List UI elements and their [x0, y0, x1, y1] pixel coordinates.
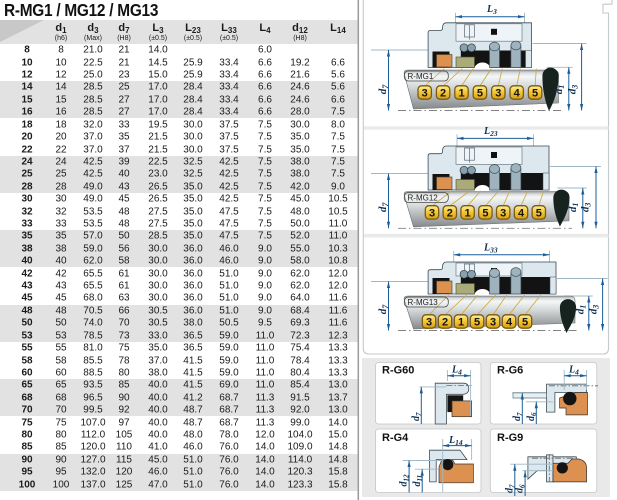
svg-text:R-G6: R-G6 — [497, 365, 523, 377]
svg-text:R-G60: R-G60 — [382, 365, 414, 377]
svg-text:3: 3 — [500, 207, 506, 219]
svg-text:5: 5 — [522, 317, 528, 329]
svg-text:1: 1 — [458, 88, 464, 100]
svg-text:5: 5 — [532, 88, 538, 100]
svg-text:d3: d3 — [580, 203, 593, 213]
svg-text:d7: d7 — [377, 84, 390, 95]
svg-text:4: 4 — [506, 317, 513, 329]
svg-text:d1: d1 — [575, 305, 588, 315]
svg-text:R-G9: R-G9 — [497, 432, 523, 444]
svg-text:2: 2 — [447, 207, 453, 219]
svg-text:3: 3 — [490, 317, 496, 329]
svg-text:3: 3 — [429, 207, 435, 219]
svg-text:3: 3 — [422, 88, 428, 100]
svg-text:L3: L3 — [486, 4, 497, 16]
svg-text:d7: d7 — [377, 202, 390, 213]
svg-text:R-MG12: R-MG12 — [408, 194, 439, 203]
svg-text:d7: d7 — [377, 304, 390, 315]
svg-text:2: 2 — [440, 88, 446, 100]
svg-text:L33: L33 — [483, 242, 498, 254]
svg-text:5: 5 — [477, 88, 483, 100]
svg-text:3: 3 — [495, 88, 501, 100]
svg-text:1: 1 — [458, 317, 464, 329]
svg-text:1: 1 — [465, 207, 471, 219]
svg-text:5: 5 — [536, 207, 542, 219]
svg-text:R-MG13: R-MG13 — [408, 298, 439, 307]
svg-text:R-G4: R-G4 — [382, 432, 409, 444]
svg-text:d3: d3 — [587, 305, 600, 315]
svg-text:R-MG1: R-MG1 — [408, 72, 434, 81]
svg-text:3: 3 — [426, 317, 432, 329]
svg-text:2: 2 — [442, 317, 448, 329]
svg-text:5: 5 — [482, 207, 488, 219]
svg-text:4: 4 — [518, 207, 525, 219]
svg-text:4: 4 — [514, 88, 521, 100]
svg-text:5: 5 — [474, 317, 480, 329]
